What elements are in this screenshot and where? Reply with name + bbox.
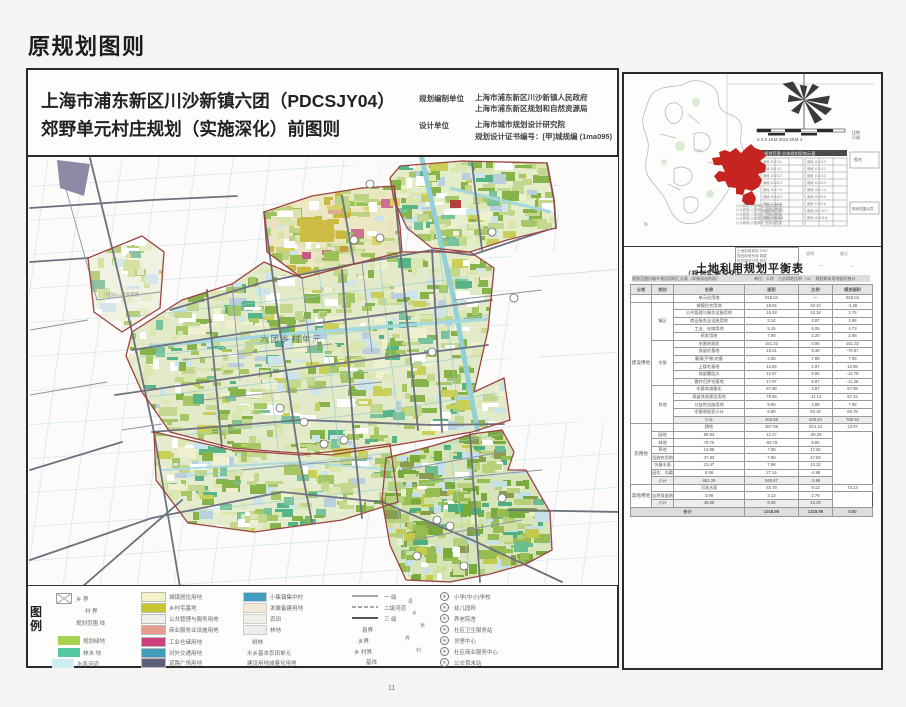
svg-text:川沙新镇 六团单元 范围示意图: 川沙新镇 六团单元 范围示意图: [736, 220, 783, 225]
svg-text:用地 14.3 6.3: 用地 14.3 6.3: [807, 180, 826, 185]
svg-text:小团心...单元范围: 小团心...单元范围: [104, 291, 140, 298]
svg-text:尺规: 尺规: [852, 134, 860, 140]
svg-text:用地 15.4 7.4: 用地 15.4 7.4: [763, 187, 782, 192]
svg-text:用地 12.1 4.1: 用地 12.1 4.1: [763, 166, 782, 171]
svg-text:规划范围 总体规划用地示意: 规划范围 总体规划用地示意: [764, 150, 815, 157]
svg-text:用地 16.5 8.5: 用地 16.5 8.5: [807, 194, 826, 199]
svg-text:六团乡村单元: 六团乡村单元: [260, 334, 323, 344]
svg-text:用地 13.2 5.2: 用地 13.2 5.2: [807, 173, 826, 178]
svg-text:规划范围示意: 规划范围示意: [852, 206, 874, 211]
svg-text:N: N: [644, 222, 648, 228]
svg-text:用地 16.5 8.5: 用地 16.5 8.5: [763, 194, 782, 199]
svg-text:图名: 图名: [854, 156, 862, 162]
svg-text:0 0.5 1KM 2KM 3KM 4: 0 0.5 1KM 2KM 3KM 4: [757, 137, 803, 142]
svg-text:用地 11.0 3.0: 用地 11.0 3.0: [807, 159, 826, 164]
svg-text:用地 19.8 11.8: 用地 19.8 11.8: [807, 215, 828, 220]
svg-text:用地 13.2 5.2: 用地 13.2 5.2: [763, 173, 782, 178]
svg-text:用地 11.0 3.0: 用地 11.0 3.0: [763, 159, 782, 164]
svg-text:用地 17.6 9.6: 用地 17.6 9.6: [807, 201, 826, 206]
svg-text:川沙: 川沙: [694, 148, 702, 153]
svg-text:用地 12.1 4.1: 用地 12.1 4.1: [807, 166, 826, 171]
svg-text:用地 15.4 7.4: 用地 15.4 7.4: [807, 187, 826, 192]
svg-text:用地 18.7 10.7: 用地 18.7 10.7: [807, 208, 828, 213]
svg-text:用地 14.3 6.3: 用地 14.3 6.3: [763, 180, 782, 185]
